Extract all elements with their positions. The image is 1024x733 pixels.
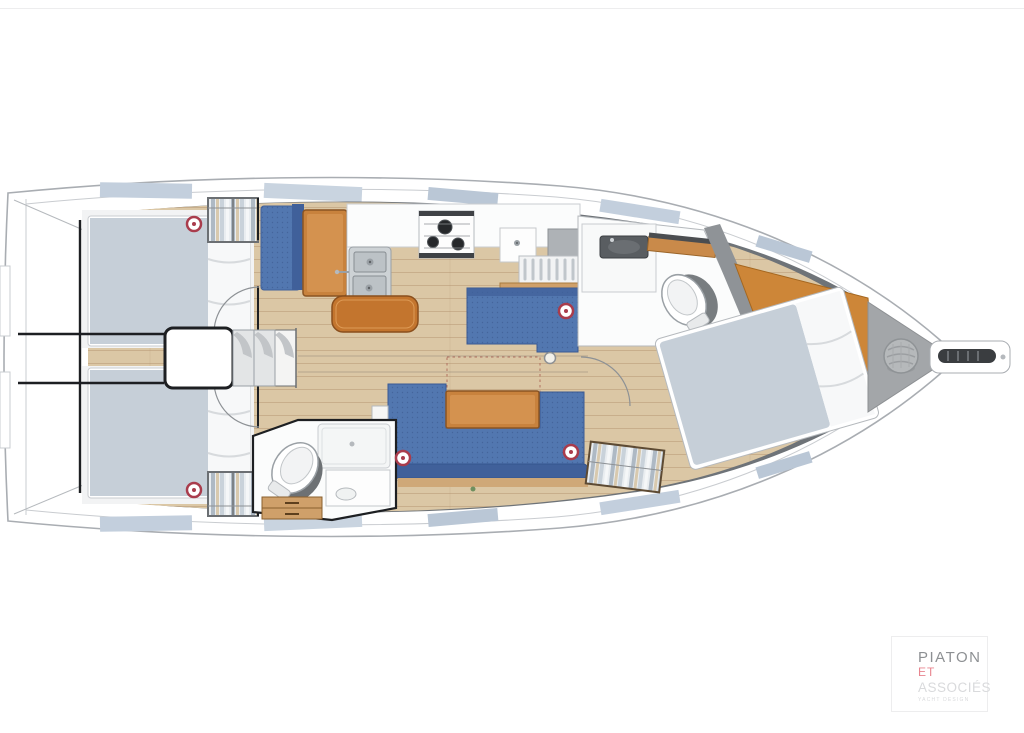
burner	[428, 237, 439, 248]
salon-table	[446, 391, 539, 428]
seat-backrest	[292, 204, 304, 290]
rope-coil	[884, 339, 918, 373]
logo-piaton-associes: PIATON ET ASSOCIÉS YACHT DESIGN	[891, 636, 988, 712]
aft-head-shower	[318, 424, 390, 468]
companionway-landing	[165, 328, 233, 388]
companionway-steps	[233, 328, 296, 388]
chart-table	[303, 210, 347, 296]
wardrobe-port	[208, 198, 258, 242]
companionway	[165, 328, 296, 388]
deck-hatch	[100, 182, 192, 199]
logo-line3: ASSOCIÉS	[918, 680, 987, 696]
bow	[868, 302, 1010, 412]
hanging-locker-forward	[586, 442, 665, 493]
galley-worktop	[548, 229, 580, 259]
floorplan-page: PIATON ET ASSOCIÉS YACHT DESIGN	[0, 0, 1024, 733]
mast-post	[545, 353, 556, 364]
logo-line2: ET	[918, 666, 987, 680]
forward-head-sink	[600, 236, 648, 258]
bowsprit	[930, 341, 1010, 373]
galley-island-table	[332, 296, 418, 332]
floorplan-canvas	[0, 0, 1024, 733]
galley-dish-rack	[519, 256, 579, 283]
deck-fitting-dot	[471, 487, 476, 492]
galley-stove	[419, 211, 474, 258]
wardrobe-starboard	[208, 472, 258, 516]
aft-cabin-port	[82, 198, 258, 348]
swim-platform-step	[0, 266, 10, 336]
salon-settee-port	[467, 288, 578, 352]
berth-mattress	[90, 218, 208, 344]
swim-platform-step	[0, 372, 10, 448]
logo-tagline: YACHT DESIGN	[918, 698, 987, 704]
logo-line1: PIATON	[918, 649, 987, 666]
aft-head	[253, 420, 396, 520]
burner	[438, 220, 452, 234]
settee-backrest	[384, 464, 588, 478]
settee-plinth	[398, 478, 588, 487]
aft-head-cabinet	[326, 470, 390, 506]
aft-head-drawers	[262, 497, 322, 519]
bow-roller-pin	[1001, 355, 1006, 360]
